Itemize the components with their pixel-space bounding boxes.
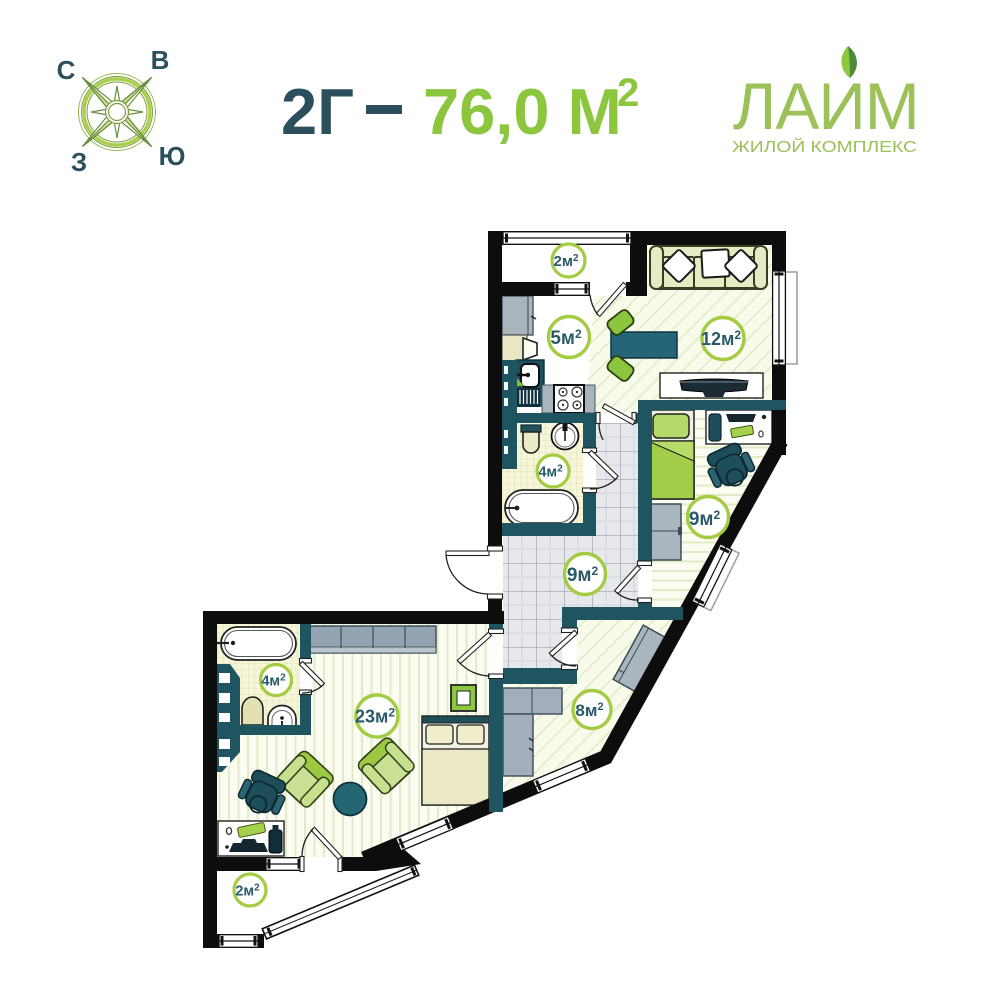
svg-text:2Г: 2Г <box>281 75 354 148</box>
svg-text:С: С <box>57 55 76 85</box>
svg-text:ЖИЛОЙ КОМПЛЕКС: ЖИЛОЙ КОМПЛЕКС <box>732 138 917 156</box>
svg-text:76,0 М: 76,0 М <box>423 75 622 148</box>
svg-text:Ю: Ю <box>159 141 186 171</box>
svg-text:2: 2 <box>617 71 639 115</box>
svg-text:В: В <box>151 45 170 75</box>
svg-text:З: З <box>71 147 87 177</box>
svg-text:ЛАИМ: ЛАИМ <box>733 69 919 143</box>
